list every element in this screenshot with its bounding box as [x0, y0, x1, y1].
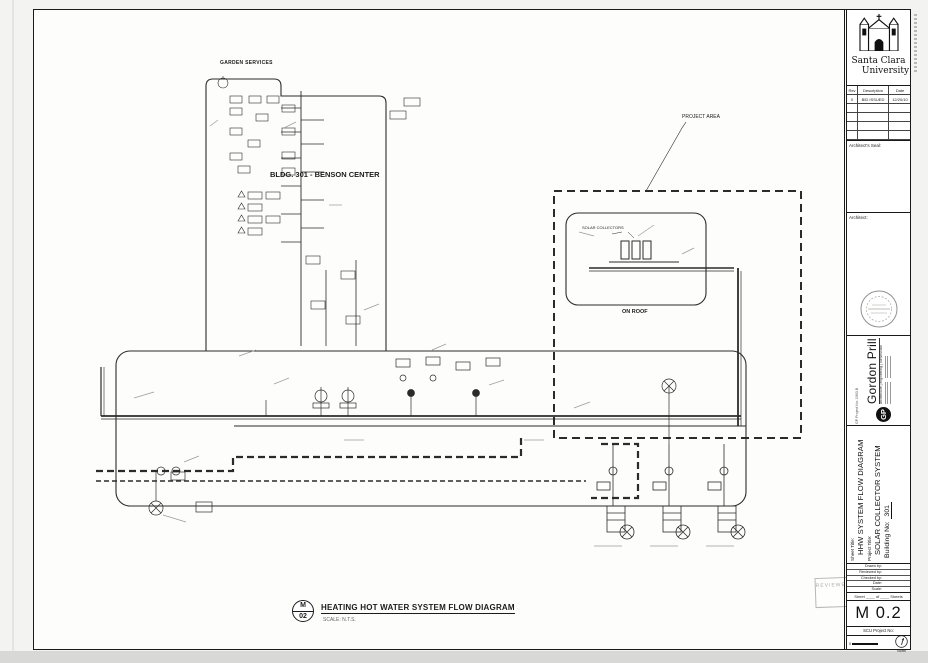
architect-seal-label: Architect's Seal: — [849, 143, 881, 148]
firm-address — [885, 338, 893, 404]
rev-cell: 12/20/10 — [889, 95, 910, 104]
drawing-frame: GARDEN SERVICES BLDG. 301 - BENSON CENTE… — [33, 9, 911, 650]
building-label: BLDG. 301 - BENSON CENTER — [270, 170, 380, 179]
scale-zero: 0 — [849, 642, 851, 646]
revision-table: Rev Description Date 0 BID ISSUED 12/20/… — [847, 86, 910, 141]
scan-artifact-bottom — [0, 651, 928, 663]
piping-diagram — [34, 10, 846, 647]
services-area-label: GARDEN SERVICES — [220, 60, 273, 66]
detail-bubble-letter: M — [293, 601, 313, 612]
plot-stamp-text — [914, 14, 917, 72]
architect-seal-box: Architect's Seal: — [847, 141, 910, 213]
university-logo-box: Santa Clara University — [847, 10, 910, 86]
architect-label: Architect: — [849, 215, 868, 220]
rev-header-rev: Rev — [847, 86, 858, 95]
rev-cell-empty — [858, 131, 889, 140]
on-roof-label: ON ROOF — [622, 309, 648, 315]
sheet-of-sheets: Sheet ____ of ____ Sheets — [847, 593, 910, 601]
scanned-sheet: GARDEN SERVICES BLDG. 301 - BENSON CENTE… — [0, 0, 928, 663]
engineer-stamp-icon — [859, 289, 899, 329]
rev-header-description: Description — [858, 86, 889, 95]
rev-cell-empty — [847, 113, 858, 122]
firm-block: GP Project No: 1903 B GP Gordon Prill ar… — [847, 336, 910, 426]
graphic-scale-bar: 0 — [849, 642, 878, 646]
rev-cell-empty — [847, 104, 858, 113]
sheet-title-value: HHW SYSTEM FLOW DIAGRAM — [856, 428, 865, 555]
rev-cell-empty — [858, 122, 889, 131]
detail-bubble: M 02 — [292, 600, 314, 622]
titleblock: Santa Clara University Rev Description D… — [846, 10, 910, 649]
sheet-title-block: Sheet Title: HHW SYSTEM FLOW DIAGRAM Pro… — [847, 426, 910, 564]
university-name-line2: University — [847, 66, 910, 76]
firm-name: Gordon Prill — [866, 338, 878, 404]
building-no-value: 301 — [884, 502, 892, 519]
diagram-title: HEATING HOT WATER SYSTEM FLOW DIAGRAM — [321, 603, 515, 614]
project-title-value: SOLAR COLLECTOR SYSTEM — [873, 428, 882, 555]
solar-collectors-label: SOLAR COLLECTORS — [582, 225, 624, 230]
north-arrow: North — [895, 636, 908, 652]
diagram-scale-note: SCALE: N.T.S. — [323, 617, 356, 623]
rev-cell: 0 — [847, 95, 858, 104]
firm-logo: GP — [876, 407, 891, 422]
rev-cell-empty — [889, 113, 910, 122]
scan-artifact-left — [12, 0, 14, 663]
sheet-number: M 0.2 — [847, 601, 910, 627]
north-arrow-icon — [895, 636, 908, 648]
rev-cell-empty — [889, 131, 910, 140]
scu-project-no-label: SCU Project No: — [847, 627, 910, 636]
scale-north-strip: 0 North — [847, 636, 910, 652]
project-area-label: PROJECT AREA — [682, 114, 720, 120]
rev-cell-empty — [847, 122, 858, 131]
rev-header-date: Date — [889, 86, 910, 95]
firm-tagline: architecture | engineering | constructio… — [879, 338, 884, 404]
rev-cell: BID ISSUED — [858, 95, 889, 104]
sheet-title-label: Sheet Title: — [850, 428, 855, 561]
rev-cell-empty — [858, 104, 889, 113]
rev-cell-empty — [889, 122, 910, 131]
building-no-label: Building No: — [884, 521, 891, 558]
rev-cell-empty — [889, 104, 910, 113]
rev-cell-empty — [847, 131, 858, 140]
detail-bubble-number: 02 — [293, 612, 313, 622]
north-label: North — [895, 650, 908, 653]
scale-bar-icon — [852, 643, 878, 646]
mission-church-icon — [857, 13, 901, 51]
architect-box: Architect: — [847, 213, 910, 336]
signoff-fields: Drawn by: Reviewed by: Checked by: Date:… — [847, 564, 910, 593]
university-name-line1: Santa Clara — [847, 56, 910, 66]
rev-cell-empty — [858, 113, 889, 122]
project-title-label: Project Title: — [867, 428, 872, 561]
